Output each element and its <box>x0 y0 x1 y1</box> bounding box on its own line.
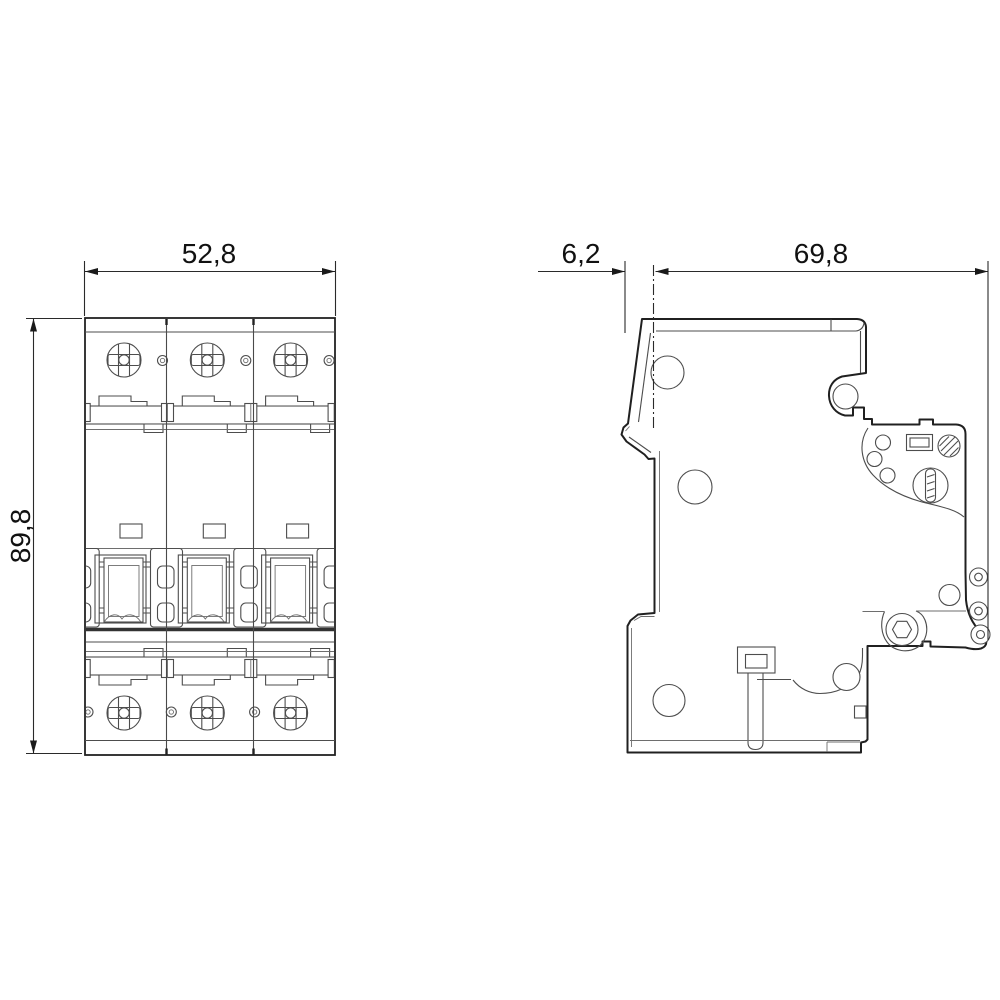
front-view: 52,8 89,8 <box>0 238 349 755</box>
technical-drawing-page: 52,8 89,8 <box>0 0 1000 1000</box>
front-height-label: 89,8 <box>5 509 36 564</box>
front-body <box>85 318 335 755</box>
screw-head-icon <box>938 435 960 457</box>
side-offset-label: 6,2 <box>562 238 601 269</box>
adjustment-screw-icon <box>913 468 948 503</box>
drawing-canvas: 52,8 89,8 <box>0 0 1000 1000</box>
side-depth-label: 69,8 <box>794 238 849 269</box>
side-body-outline <box>622 319 987 753</box>
front-width-dimension: 52,8 <box>85 238 336 316</box>
front-width-label: 52,8 <box>182 238 237 269</box>
side-view: 6,2 69,8 <box>538 238 990 753</box>
terminal-bumps <box>970 568 991 644</box>
front-height-dimension: 89,8 <box>5 319 82 754</box>
